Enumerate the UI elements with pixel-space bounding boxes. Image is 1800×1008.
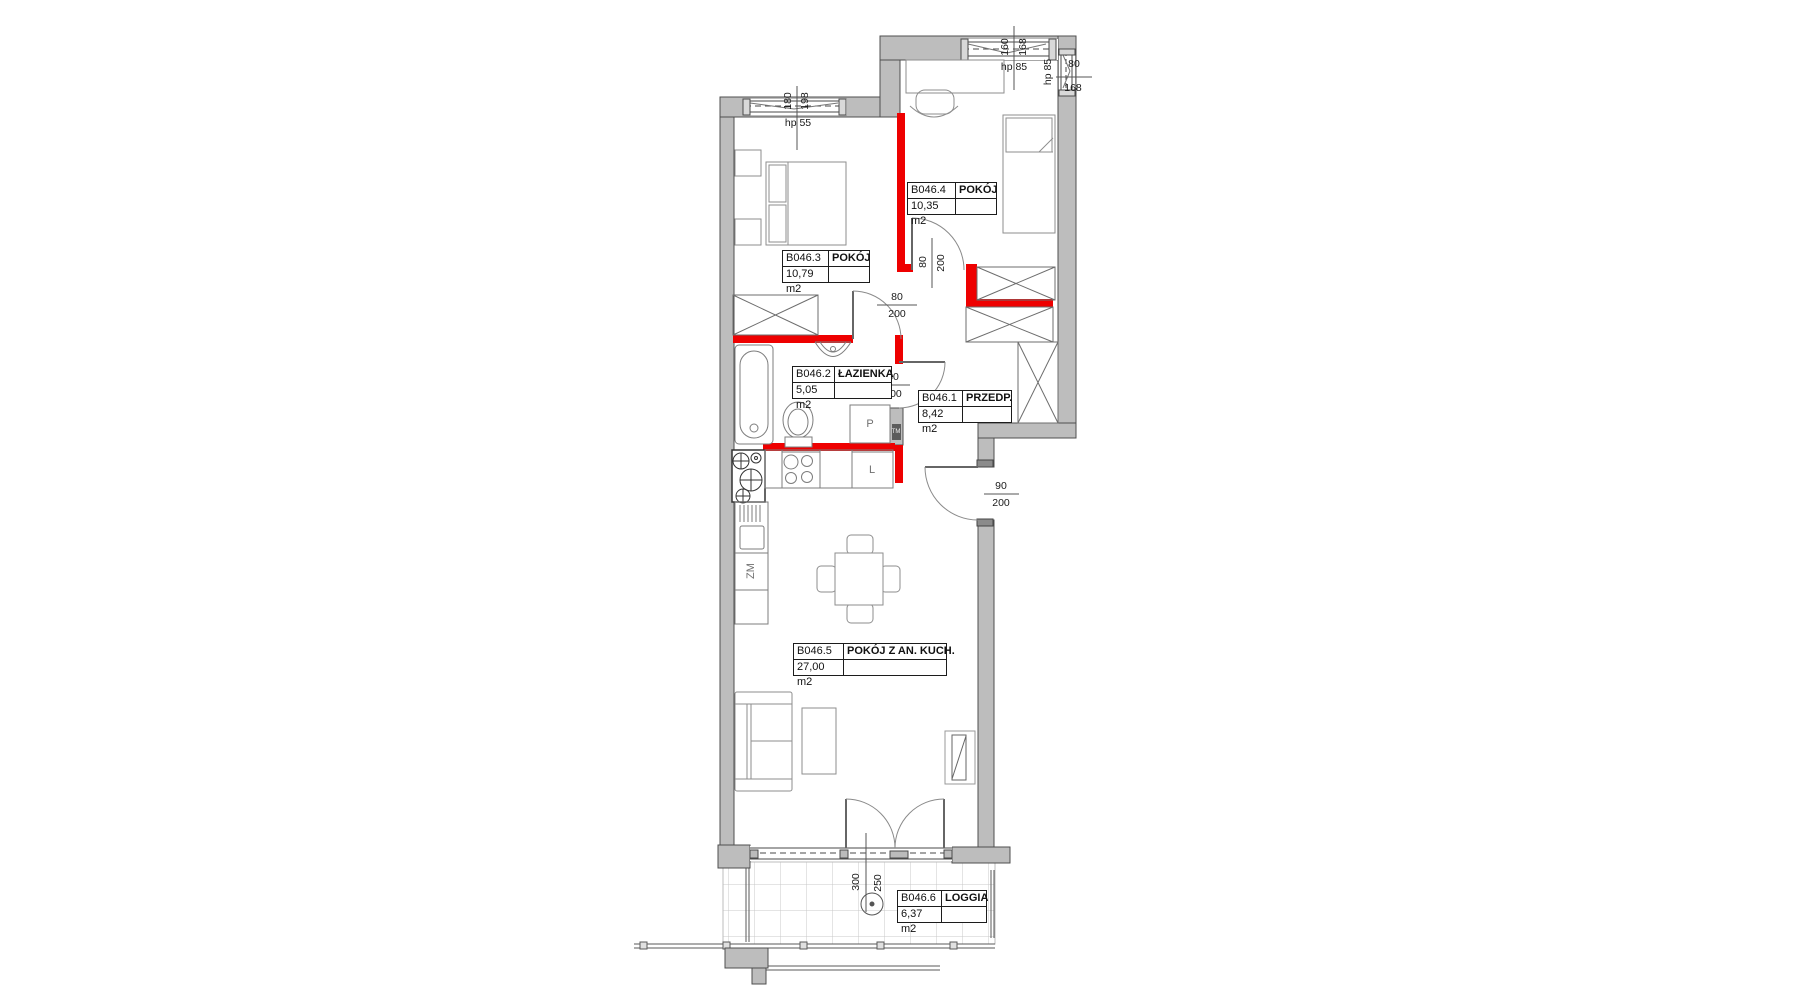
window3-sill-dim: hp 85 xyxy=(1042,59,1054,85)
room-label-b046-6: B046.6LOGGIA 6,37 m2 xyxy=(897,890,987,923)
room-label-blank xyxy=(844,660,946,675)
living-room-furniture xyxy=(735,692,975,791)
single-bed xyxy=(1003,115,1055,233)
room-label-b046-5: B046.5POKÓJ Z AN. KUCH. 27,00 m2 xyxy=(793,643,947,676)
chair xyxy=(847,604,873,623)
sofa xyxy=(735,692,792,791)
window3-height-dim: 168 xyxy=(1064,82,1082,94)
door-entrance xyxy=(925,467,978,520)
room-name: POKÓJ Z AN. KUCH. xyxy=(844,644,958,659)
room-label-b046-3: B046.3POKÓJ 10,79 m2 xyxy=(782,250,870,283)
door4-height-dim: 200 xyxy=(935,254,947,272)
meter-label: TM xyxy=(892,429,901,435)
room-label-b046-2: B046.2ŁAZIENKA 5,05 m2 xyxy=(792,366,892,399)
window-top-left xyxy=(743,99,847,115)
washing-machine-label: P xyxy=(866,418,873,430)
room-id: B046.2 xyxy=(793,367,835,382)
loggia-door-height-dim: 250 xyxy=(872,874,884,892)
room-area: 27,00 m2 xyxy=(794,660,844,675)
room-id: B046.3 xyxy=(783,251,829,266)
coffee-table xyxy=(802,708,836,774)
door-arcs xyxy=(846,218,978,848)
entry-door-width-dim: 90 xyxy=(995,480,1007,492)
corner-sink-unit xyxy=(732,450,765,503)
room-name: ŁAZIENKA xyxy=(835,367,897,382)
chair xyxy=(817,566,836,592)
chair xyxy=(881,566,900,592)
dishwasher-label: ZM xyxy=(745,563,757,579)
base-cabinet xyxy=(735,590,768,624)
window2-width-dim: 160 xyxy=(999,38,1011,56)
room-label-b046-1: B046.1PRZEDP. 8,42 m2 xyxy=(918,390,1012,423)
chair xyxy=(847,535,873,554)
washbasin xyxy=(815,342,851,357)
double-bed xyxy=(766,162,846,245)
room-label-blank xyxy=(942,907,986,922)
radiator xyxy=(945,731,975,784)
room-label-blank xyxy=(835,383,891,398)
room-area: 5,05 m2 xyxy=(793,383,835,398)
room-label-b046-4: B046.4POKÓJ 10,35 m2 xyxy=(907,182,997,215)
wardrobe xyxy=(977,267,1055,300)
loggia-door-window xyxy=(750,846,952,861)
window3-width-dim: 80 xyxy=(1068,58,1080,70)
fridge-label: L xyxy=(869,464,875,476)
room-label-blank xyxy=(963,407,1011,422)
desk xyxy=(906,60,1004,93)
door3-width-dim: 80 xyxy=(891,291,903,303)
room-area: 6,37 m2 xyxy=(898,907,942,922)
stove xyxy=(782,452,820,488)
window1-height-dim: 198 xyxy=(799,92,811,110)
nightstand xyxy=(735,150,761,176)
floor-plan-drawing xyxy=(0,0,1800,1008)
room-id: B046.1 xyxy=(919,391,963,406)
room-label-blank xyxy=(829,267,869,282)
room-name: POKÓJ xyxy=(956,183,1001,198)
dining-set xyxy=(817,535,900,623)
desk-chair xyxy=(910,90,958,117)
room-name: PRZEDP. xyxy=(963,391,1015,406)
bedroom3-furniture xyxy=(733,150,846,335)
door-loggia-double xyxy=(846,799,944,848)
window2-height-dim: 168 xyxy=(1017,38,1029,56)
floor-plan: B046.3POKÓJ 10,79 m2 B046.4POKÓJ 10,35 m… xyxy=(0,0,1800,1008)
room-area: 10,79 m2 xyxy=(783,267,829,282)
door3-height-dim: 200 xyxy=(888,308,906,320)
wardrobe xyxy=(733,295,818,335)
entry-door-height-dim: 200 xyxy=(992,497,1010,509)
room-area: 8,42 m2 xyxy=(919,407,963,422)
room-id: B046.6 xyxy=(898,891,942,906)
room-name: LOGGIA xyxy=(942,891,991,906)
window1-width-dim: 180 xyxy=(782,92,794,110)
loggia-door-width-dim: 300 xyxy=(850,873,862,891)
bathtub xyxy=(735,345,773,444)
door4-width-dim: 80 xyxy=(917,256,929,268)
room-id: B046.5 xyxy=(794,644,844,659)
window1-sill-dim: hp 55 xyxy=(785,117,811,129)
dining-table xyxy=(835,553,883,605)
tall-cabinet xyxy=(735,502,768,553)
room-name: POKÓJ xyxy=(829,251,874,266)
room-area: 10,35 m2 xyxy=(908,199,956,214)
window2-sill-dim: hp 85 xyxy=(1001,61,1027,73)
entry-door-jambs xyxy=(977,460,993,526)
room-label-blank xyxy=(956,199,996,214)
nightstand xyxy=(735,219,761,245)
room-id: B046.4 xyxy=(908,183,956,198)
